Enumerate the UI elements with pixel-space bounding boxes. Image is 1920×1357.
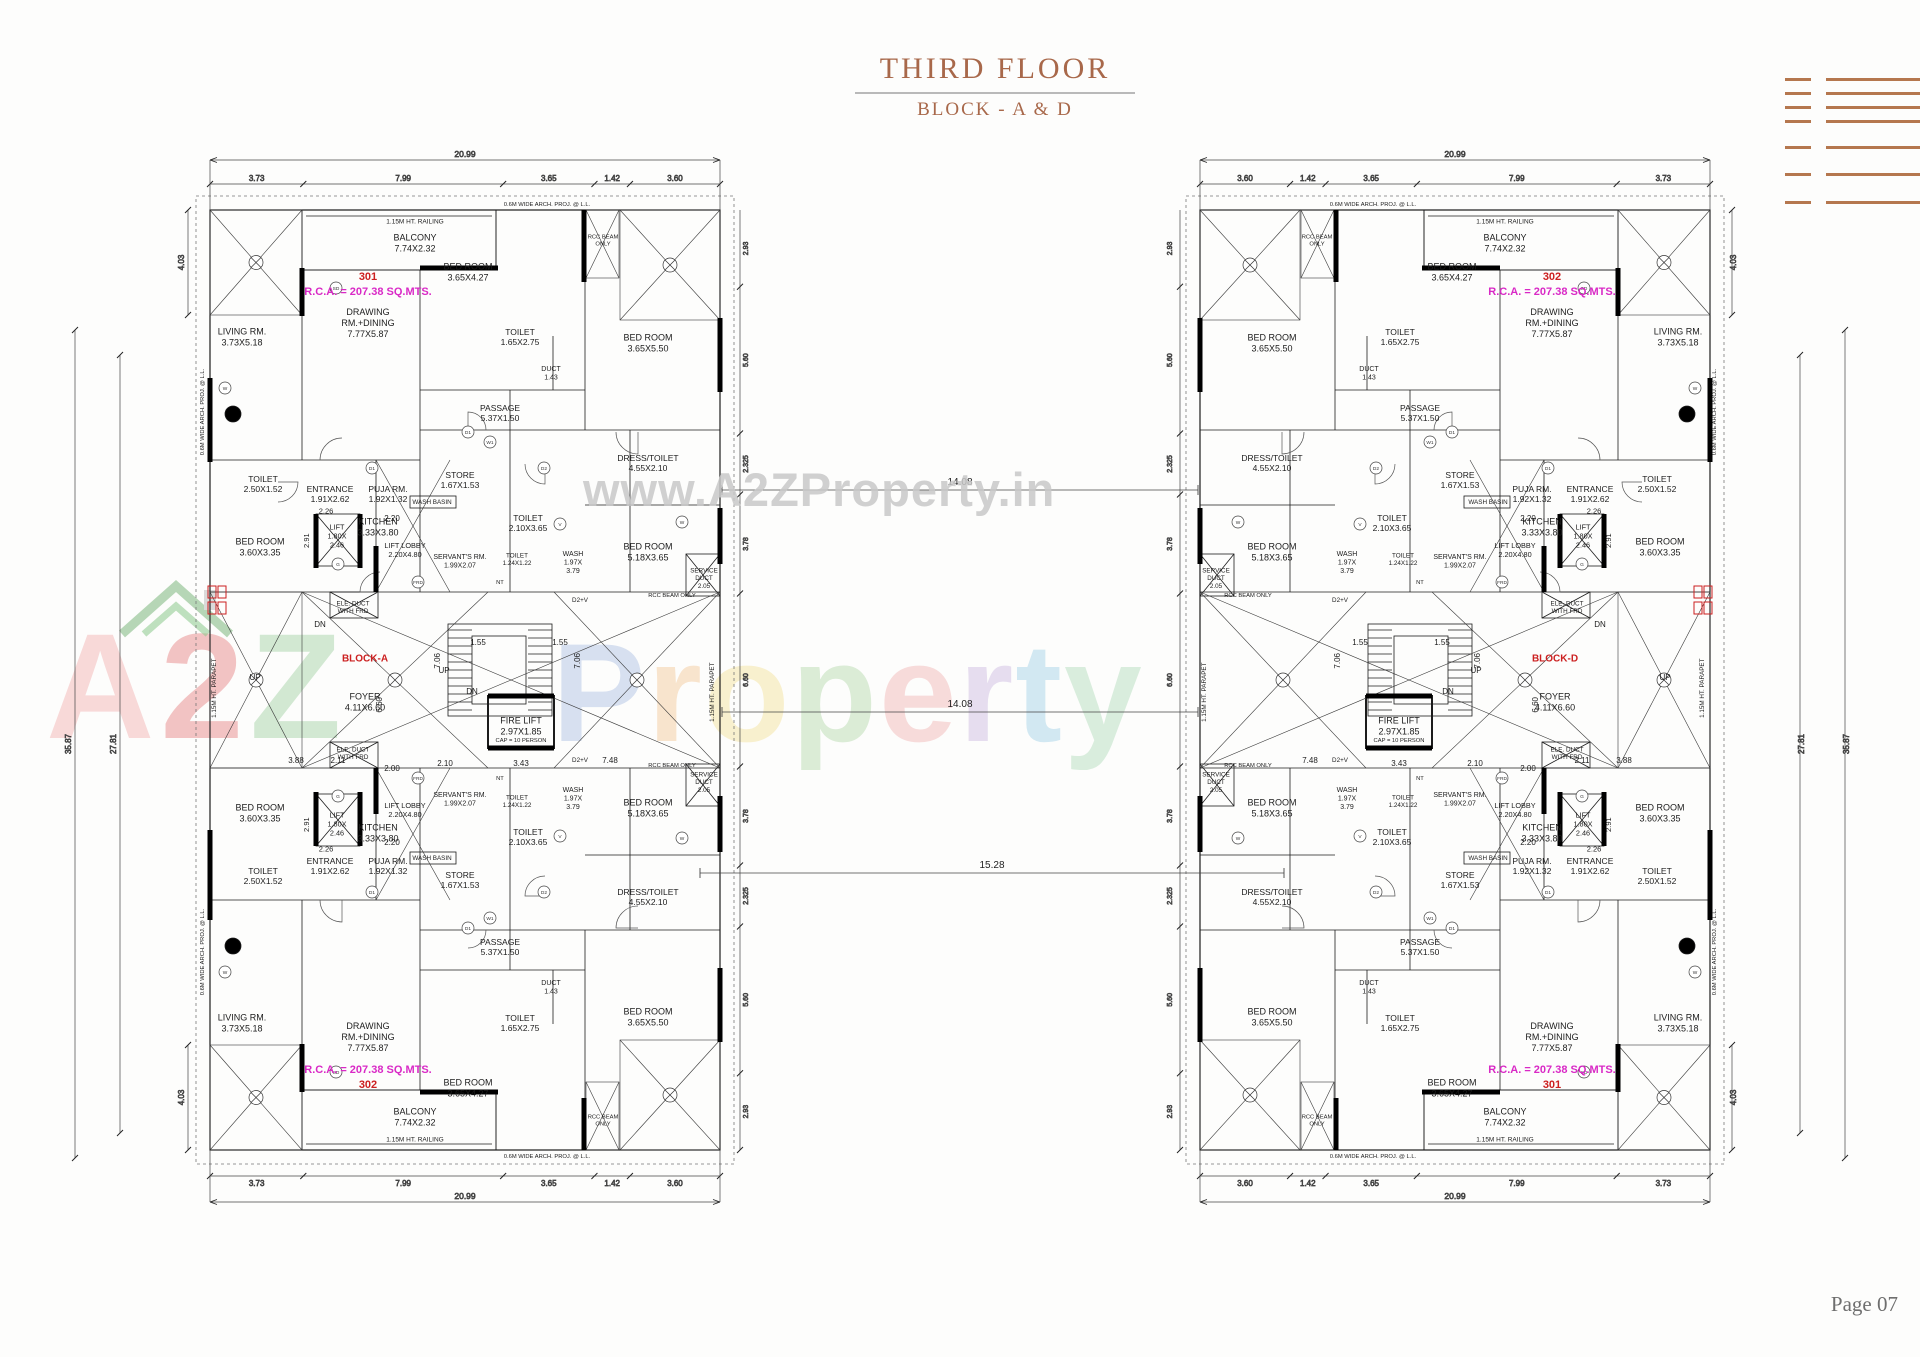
svg-text:1.67X1.53: 1.67X1.53	[441, 480, 480, 490]
svg-text:2.50X1.52: 2.50X1.52	[1638, 876, 1677, 886]
svg-text:D1: D1	[1545, 466, 1551, 472]
svg-text:4.03: 4.03	[177, 1089, 186, 1105]
svg-text:3.60: 3.60	[667, 1179, 683, 1188]
svg-text:7.99: 7.99	[1509, 174, 1525, 183]
svg-text:RM.+DINING: RM.+DINING	[341, 318, 394, 328]
brand-logo	[1785, 78, 1920, 204]
svg-text:301: 301	[359, 271, 377, 283]
svg-text:LIFT LOBBY: LIFT LOBBY	[384, 541, 425, 550]
svg-text:DUCT: DUCT	[541, 980, 561, 987]
svg-text:W: W	[680, 836, 685, 842]
svg-text:7.77X5.87: 7.77X5.87	[347, 1043, 388, 1053]
svg-text:BED ROOM: BED ROOM	[1247, 542, 1296, 552]
svg-text:301: 301	[1543, 1079, 1561, 1091]
svg-text:SERVANT'S RM.: SERVANT'S RM.	[1433, 554, 1486, 561]
svg-text:3.78: 3.78	[1167, 537, 1174, 551]
svg-text:BED ROOM: BED ROOM	[623, 333, 672, 343]
svg-text:STORE: STORE	[1445, 870, 1474, 880]
svg-text:0.6M WIDE ARCH. PROJ. @ L.L.: 0.6M WIDE ARCH. PROJ. @ L.L.	[200, 368, 206, 455]
svg-text:2.325: 2.325	[743, 887, 750, 905]
svg-text:1.99X2.07: 1.99X2.07	[1444, 801, 1476, 808]
svg-text:KITCHEN: KITCHEN	[358, 823, 398, 833]
svg-text:RM.+DINING: RM.+DINING	[1525, 318, 1578, 328]
svg-text:BLOCK-D: BLOCK-D	[1532, 654, 1578, 665]
svg-text:DN: DN	[466, 687, 478, 696]
logo-line-row	[1785, 78, 1920, 81]
svg-text:FRD: FRD	[1497, 580, 1507, 586]
svg-text:PASSAGE: PASSAGE	[480, 937, 520, 947]
svg-text:TOILET: TOILET	[1642, 866, 1672, 876]
svg-text:R.C.A. = 207.38 SQ.MTS.: R.C.A. = 207.38 SQ.MTS.	[304, 286, 431, 298]
svg-text:1.67X1.53: 1.67X1.53	[1441, 480, 1480, 490]
svg-text:7.77X5.87: 7.77X5.87	[1531, 329, 1572, 339]
svg-text:R.C.A. = 207.38 SQ.MTS.: R.C.A. = 207.38 SQ.MTS.	[1488, 1064, 1615, 1076]
svg-text:1.15M HT. PARAPET: 1.15M HT. PARAPET	[1699, 658, 1706, 718]
dimensions: 3.737.993.651.423.6020.993.737.993.651.4…	[64, 149, 750, 1205]
svg-text:FRD: FRD	[413, 580, 423, 586]
svg-text:G: G	[1580, 794, 1584, 800]
svg-text:DRESS/TOILET: DRESS/TOILET	[1241, 453, 1302, 463]
svg-text:TOILET: TOILET	[513, 827, 543, 837]
svg-text:BED ROOM: BED ROOM	[443, 1078, 492, 1088]
svg-text:W: W	[1693, 386, 1698, 392]
logo-line-row	[1785, 106, 1920, 109]
svg-text:6.60: 6.60	[1167, 673, 1174, 687]
svg-text:LIVING RM.: LIVING RM.	[218, 1013, 267, 1023]
svg-text:7.74X2.32: 7.74X2.32	[394, 1118, 435, 1128]
svg-text:2.05: 2.05	[1210, 787, 1223, 794]
svg-text:3.65: 3.65	[541, 1179, 557, 1188]
svg-text:NT: NT	[1416, 776, 1424, 782]
svg-text:2.26: 2.26	[319, 845, 334, 854]
svg-text:BED ROOM: BED ROOM	[1247, 798, 1296, 808]
svg-text:1.80X: 1.80X	[327, 532, 346, 541]
svg-text:PUJA RM.: PUJA RM.	[1512, 856, 1551, 866]
svg-text:TOILET: TOILET	[1385, 1013, 1415, 1023]
svg-text:3.60X3.35: 3.60X3.35	[239, 548, 280, 558]
svg-text:3.60X3.35: 3.60X3.35	[1639, 814, 1680, 824]
svg-text:20.99: 20.99	[454, 1191, 476, 1201]
svg-text:2.11: 2.11	[1575, 756, 1591, 765]
svg-text:1.15M HT. PARAPET: 1.15M HT. PARAPET	[1201, 662, 1208, 722]
svg-text:3.73X5.18: 3.73X5.18	[221, 338, 262, 348]
svg-text:2.325: 2.325	[1167, 887, 1174, 905]
svg-text:D1: D1	[465, 430, 471, 436]
svg-text:W1: W1	[486, 916, 494, 922]
svg-text:D2+V: D2+V	[572, 597, 589, 604]
svg-text:2.20X4.80: 2.20X4.80	[388, 550, 421, 559]
svg-text:2.10X3.65: 2.10X3.65	[509, 523, 548, 533]
svg-text:3.73: 3.73	[1656, 1179, 1672, 1188]
svg-text:RCC BEAM ONLY: RCC BEAM ONLY	[1224, 593, 1272, 599]
svg-text:6.60: 6.60	[743, 673, 750, 687]
svg-text:STORE: STORE	[445, 470, 474, 480]
svg-text:D2+V: D2+V	[1332, 597, 1349, 604]
svg-text:SERVANT'S RM.: SERVANT'S RM.	[1433, 792, 1486, 799]
svg-text:5.60: 5.60	[1167, 353, 1174, 367]
svg-text:3.73: 3.73	[1656, 174, 1672, 183]
fire-hydrant-symbol	[1694, 602, 1712, 614]
svg-text:FRD: FRD	[1497, 776, 1507, 782]
svg-text:2.91: 2.91	[1604, 817, 1613, 832]
svg-text:1.65X2.75: 1.65X2.75	[1381, 337, 1420, 347]
svg-text:2.50X1.52: 2.50X1.52	[244, 876, 283, 886]
svg-text:5.18X3.65: 5.18X3.65	[1251, 809, 1292, 819]
svg-text:4.03: 4.03	[1729, 254, 1738, 270]
svg-text:NT: NT	[496, 776, 504, 782]
svg-text:PUJA RM.: PUJA RM.	[1512, 484, 1551, 494]
svg-text:2.05: 2.05	[698, 787, 711, 794]
svg-text:2.00: 2.00	[384, 764, 400, 773]
svg-text:35.87: 35.87	[1842, 733, 1851, 754]
svg-text:1.24X1.22: 1.24X1.22	[503, 560, 532, 567]
svg-text:WASH: WASH	[1337, 787, 1358, 794]
svg-text:R.C.A. = 207.38 SQ.MTS.: R.C.A. = 207.38 SQ.MTS.	[304, 1064, 431, 1076]
svg-text:W: W	[1236, 836, 1241, 842]
svg-text:1.43: 1.43	[544, 989, 558, 996]
svg-text:5.60: 5.60	[1167, 993, 1174, 1007]
svg-text:1.91X2.62: 1.91X2.62	[311, 494, 350, 504]
logo-line-row	[1785, 92, 1920, 95]
svg-text:D2: D2	[541, 890, 547, 896]
svg-text:ONLY: ONLY	[595, 1122, 610, 1128]
svg-text:7.99: 7.99	[395, 1179, 411, 1188]
svg-text:7.74X2.32: 7.74X2.32	[1484, 1118, 1525, 1128]
svg-text:1.97X: 1.97X	[1338, 795, 1357, 802]
svg-text:DRAWING: DRAWING	[346, 1021, 389, 1031]
svg-text:STORE: STORE	[1445, 470, 1474, 480]
svg-text:DUCT: DUCT	[1359, 366, 1379, 373]
svg-text:2.00: 2.00	[1520, 764, 1536, 773]
svg-text:2.26: 2.26	[1587, 507, 1602, 516]
svg-text:ELE. DUCT: ELE. DUCT	[1551, 600, 1584, 607]
svg-text:W1: W1	[486, 440, 494, 446]
floor-plan-block-a: 3.737.993.651.423.6020.993.737.993.651.4…	[20, 130, 860, 1220]
svg-text:3.33X3.80: 3.33X3.80	[1521, 528, 1562, 538]
svg-text:3.60X3.35: 3.60X3.35	[239, 814, 280, 824]
svg-text:DUCT: DUCT	[1359, 980, 1379, 987]
svg-text:G: G	[336, 794, 340, 800]
svg-text:7.06: 7.06	[433, 652, 442, 668]
svg-text:D2+V: D2+V	[572, 757, 589, 764]
svg-text:2.10X3.65: 2.10X3.65	[1373, 837, 1412, 847]
svg-text:2.93: 2.93	[743, 241, 750, 255]
watermark-letter: t	[1015, 614, 1064, 771]
svg-text:6.60: 6.60	[1531, 696, 1540, 712]
svg-text:3.65X4.27: 3.65X4.27	[1431, 273, 1472, 283]
svg-text:3.65X5.50: 3.65X5.50	[1251, 344, 1292, 354]
svg-text:1.97X: 1.97X	[1338, 559, 1357, 566]
svg-text:TOILET: TOILET	[248, 866, 278, 876]
svg-text:SERVANT'S RM.: SERVANT'S RM.	[433, 554, 486, 561]
svg-text:DUCT: DUCT	[1207, 575, 1225, 582]
svg-text:2.20: 2.20	[384, 838, 400, 847]
svg-text:3.65X4.27: 3.65X4.27	[1431, 1089, 1472, 1099]
svg-text:1.43: 1.43	[1362, 989, 1376, 996]
svg-text:ENTRANCE: ENTRANCE	[1567, 856, 1614, 866]
svg-text:BED ROOM: BED ROOM	[1427, 1078, 1476, 1088]
svg-text:SERVICE: SERVICE	[690, 568, 718, 575]
page-subtitle: BLOCK - A & D	[830, 99, 1160, 121]
floor-plan-block-d: 3.737.993.651.423.6020.993.737.993.651.4…	[1060, 130, 1900, 1220]
watermark-letter: e	[879, 614, 959, 771]
svg-text:ELE. DUCT: ELE. DUCT	[337, 600, 370, 607]
svg-text:1.91X2.62: 1.91X2.62	[311, 866, 350, 876]
svg-text:1.80X: 1.80X	[1573, 820, 1592, 829]
svg-text:7.48: 7.48	[1302, 756, 1318, 765]
svg-text:DN: DN	[314, 620, 326, 629]
svg-text:2.91: 2.91	[302, 533, 311, 548]
svg-text:PASSAGE: PASSAGE	[480, 403, 520, 413]
svg-text:DRESS/TOILET: DRESS/TOILET	[617, 887, 678, 897]
svg-text:2.10: 2.10	[1467, 759, 1483, 768]
svg-text:TOILET: TOILET	[1385, 327, 1415, 337]
svg-text:1.15M HT. PARAPET: 1.15M HT. PARAPET	[709, 662, 716, 722]
svg-text:PASSAGE: PASSAGE	[1400, 403, 1440, 413]
svg-text:ENTRANCE: ENTRANCE	[1567, 484, 1614, 494]
svg-text:3.65X5.50: 3.65X5.50	[627, 1018, 668, 1028]
svg-text:SERVICE: SERVICE	[1202, 568, 1230, 575]
svg-text:2.05: 2.05	[1210, 583, 1223, 590]
svg-text:1.55: 1.55	[1352, 638, 1368, 647]
svg-text:1.65X2.75: 1.65X2.75	[1381, 1023, 1420, 1033]
title-divider	[855, 92, 1135, 94]
svg-text:W: W	[1236, 520, 1241, 526]
title-block: THIRD FLOOR BLOCK - A & D	[830, 52, 1160, 121]
svg-text:1.80X: 1.80X	[327, 820, 346, 829]
svg-text:1.15M HT. RAILING: 1.15M HT. RAILING	[1476, 218, 1533, 225]
svg-text:0.6M WIDE ARCH. PROJ. @ L.L.: 0.6M WIDE ARCH. PROJ. @ L.L.	[504, 202, 591, 208]
svg-text:1.15M HT. RAILING: 1.15M HT. RAILING	[1476, 1136, 1533, 1143]
svg-text:TOILET: TOILET	[506, 794, 528, 801]
svg-text:5.37X1.50: 5.37X1.50	[1401, 947, 1440, 957]
svg-text:2.93: 2.93	[743, 1105, 750, 1119]
svg-text:ONLY: ONLY	[1309, 1122, 1324, 1128]
svg-text:5.37X1.50: 5.37X1.50	[481, 413, 520, 423]
svg-text:BED ROOM: BED ROOM	[443, 262, 492, 272]
svg-text:3.78: 3.78	[1167, 809, 1174, 823]
svg-text:4.55X2.10: 4.55X2.10	[1253, 897, 1292, 907]
svg-text:1.91X2.62: 1.91X2.62	[1571, 494, 1610, 504]
svg-text:5.60: 5.60	[743, 353, 750, 367]
svg-text:2.11: 2.11	[331, 756, 347, 765]
svg-text:BED ROOM: BED ROOM	[1247, 1007, 1296, 1017]
svg-text:WASH BASIN: WASH BASIN	[412, 855, 452, 862]
svg-text:TOILET: TOILET	[505, 1013, 535, 1023]
svg-text:1.92X1.32: 1.92X1.32	[1513, 866, 1552, 876]
svg-text:DRAWING: DRAWING	[1530, 307, 1573, 317]
svg-text:ONLY: ONLY	[1309, 242, 1324, 248]
svg-text:1.67X1.53: 1.67X1.53	[1441, 880, 1480, 890]
svg-text:LIFT: LIFT	[330, 523, 346, 532]
svg-text:27.81: 27.81	[109, 733, 118, 754]
svg-text:0.6M WIDE ARCH. PROJ. @ L.L.: 0.6M WIDE ARCH. PROJ. @ L.L.	[504, 1154, 591, 1160]
svg-text:RCC BEAM: RCC BEAM	[588, 234, 619, 240]
svg-text:RCC BEAM: RCC BEAM	[1302, 1114, 1333, 1120]
svg-text:LIFT: LIFT	[1576, 811, 1592, 820]
svg-text:NT: NT	[1416, 580, 1424, 586]
svg-text:7.77X5.87: 7.77X5.87	[347, 329, 388, 339]
svg-text:3.65: 3.65	[541, 174, 557, 183]
svg-text:3.65: 3.65	[1363, 174, 1379, 183]
logo-line-row	[1785, 201, 1920, 204]
svg-text:D2+V: D2+V	[1332, 757, 1349, 764]
svg-text:3.73X5.18: 3.73X5.18	[1657, 1024, 1698, 1034]
svg-text:BED ROOM: BED ROOM	[1635, 537, 1684, 547]
watermark-url: www.A2ZProperty.in	[583, 462, 1055, 517]
svg-text:TOILET: TOILET	[505, 327, 535, 337]
svg-text:0.6M WIDE ARCH. PROJ. @ L.L.: 0.6M WIDE ARCH. PROJ. @ L.L.	[1330, 1154, 1417, 1160]
svg-text:2.46: 2.46	[330, 828, 344, 837]
svg-text:SERVICE: SERVICE	[690, 772, 718, 779]
svg-text:PASSAGE: PASSAGE	[1400, 937, 1440, 947]
svg-text:WASH BASIN: WASH BASIN	[412, 499, 452, 506]
svg-text:20.99: 20.99	[1444, 149, 1466, 159]
svg-text:W: W	[223, 970, 228, 976]
svg-text:BED ROOM: BED ROOM	[1427, 262, 1476, 272]
svg-text:1.99X2.07: 1.99X2.07	[1444, 563, 1476, 570]
svg-text:5.37X1.50: 5.37X1.50	[481, 947, 520, 957]
svg-text:5.18X3.65: 5.18X3.65	[627, 809, 668, 819]
svg-text:W: W	[680, 520, 685, 526]
svg-text:LIFT: LIFT	[1576, 523, 1592, 532]
svg-text:1.42: 1.42	[604, 1179, 620, 1188]
svg-text:2.26: 2.26	[1587, 845, 1602, 854]
svg-text:RCC BEAM ONLY: RCC BEAM ONLY	[648, 593, 696, 599]
svg-text:BALCONY: BALCONY	[393, 1107, 436, 1117]
svg-text:6.60: 6.60	[375, 696, 384, 712]
svg-text:W: W	[1693, 970, 1698, 976]
svg-text:PUJA RM.: PUJA RM.	[368, 856, 407, 866]
watermark-letter: r	[959, 614, 1015, 771]
svg-text:7.06: 7.06	[1473, 652, 1482, 668]
svg-text:302: 302	[359, 1079, 377, 1091]
svg-text:3.60: 3.60	[1237, 1179, 1253, 1188]
svg-text:D2: D2	[541, 466, 547, 472]
svg-text:15.28: 15.28	[979, 860, 1004, 871]
svg-text:7.06: 7.06	[573, 652, 582, 668]
svg-text:W1: W1	[1426, 916, 1434, 922]
svg-text:2.20X4.80: 2.20X4.80	[388, 810, 421, 819]
logo-line-row	[1785, 146, 1920, 149]
svg-text:LIFT LOBBY: LIFT LOBBY	[1494, 541, 1535, 550]
svg-text:3.79: 3.79	[1340, 568, 1354, 575]
svg-text:7.74X2.32: 7.74X2.32	[1484, 244, 1525, 254]
svg-text:WASH BASIN: WASH BASIN	[1468, 855, 1508, 862]
svg-text:W1: W1	[1426, 440, 1434, 446]
svg-text:3.65X4.27: 3.65X4.27	[447, 273, 488, 283]
svg-text:TOILET: TOILET	[1377, 827, 1407, 837]
svg-text:302: 302	[1543, 271, 1561, 283]
plan-block-left: 3.737.993.651.423.6020.993.737.993.651.4…	[20, 130, 860, 1225]
svg-text:1.24X1.22: 1.24X1.22	[1389, 560, 1418, 567]
svg-text:1.43: 1.43	[544, 375, 558, 382]
svg-text:D1: D1	[1545, 890, 1551, 896]
svg-text:BED ROOM: BED ROOM	[623, 798, 672, 808]
svg-text:WASH: WASH	[1337, 551, 1358, 558]
svg-text:D1: D1	[369, 466, 375, 472]
svg-text:2.325: 2.325	[1167, 455, 1174, 473]
svg-text:DUCT: DUCT	[695, 779, 713, 786]
svg-text:2.20X4.80: 2.20X4.80	[1498, 810, 1531, 819]
svg-text:DRAWING: DRAWING	[1530, 1021, 1573, 1031]
svg-text:3.73: 3.73	[249, 1179, 265, 1188]
svg-text:DUCT: DUCT	[1207, 779, 1225, 786]
svg-text:FIRE LIFT: FIRE LIFT	[500, 716, 542, 726]
svg-text:2.46: 2.46	[1576, 828, 1590, 837]
svg-text:BLOCK-A: BLOCK-A	[342, 654, 388, 665]
svg-text:SERVANT'S RM.: SERVANT'S RM.	[433, 792, 486, 799]
svg-text:2.93: 2.93	[1167, 241, 1174, 255]
svg-text:RCC BEAM: RCC BEAM	[588, 1114, 619, 1120]
svg-text:3.78: 3.78	[743, 537, 750, 551]
svg-text:3.88: 3.88	[288, 756, 304, 765]
svg-text:D1: D1	[465, 926, 471, 932]
svg-text:BED ROOM: BED ROOM	[623, 1007, 672, 1017]
svg-text:TOILET: TOILET	[506, 552, 528, 559]
svg-text:1.65X2.75: 1.65X2.75	[501, 337, 540, 347]
svg-text:UP: UP	[1659, 673, 1670, 682]
svg-text:2.50X1.52: 2.50X1.52	[244, 484, 283, 494]
svg-text:CAP = 10 PERSON: CAP = 10 PERSON	[1374, 738, 1425, 744]
svg-text:NT: NT	[496, 580, 504, 586]
svg-text:1.92X1.32: 1.92X1.32	[369, 866, 408, 876]
svg-text:FOYER: FOYER	[1539, 692, 1571, 702]
svg-text:2.10: 2.10	[437, 759, 453, 768]
svg-text:FRD: FRD	[413, 776, 423, 782]
svg-text:2.93: 2.93	[1167, 1105, 1174, 1119]
svg-text:0.6M WIDE ARCH. PROJ. @ L.L.: 0.6M WIDE ARCH. PROJ. @ L.L.	[1712, 908, 1718, 995]
svg-text:4.55X2.10: 4.55X2.10	[629, 897, 668, 907]
svg-text:TOILET: TOILET	[1392, 552, 1414, 559]
svg-text:0.6M WIDE ARCH. PROJ. @ L.L.: 0.6M WIDE ARCH. PROJ. @ L.L.	[1330, 202, 1417, 208]
svg-text:3.65: 3.65	[1363, 1179, 1379, 1188]
svg-text:BALCONY: BALCONY	[1483, 1107, 1526, 1117]
svg-text:DRAWING: DRAWING	[346, 307, 389, 317]
svg-text:RCC BEAM: RCC BEAM	[1302, 234, 1333, 240]
svg-text:7.74X2.32: 7.74X2.32	[394, 244, 435, 254]
svg-text:2.91: 2.91	[302, 817, 311, 832]
svg-text:BED ROOM: BED ROOM	[623, 542, 672, 552]
svg-text:RCC BEAM ONLY: RCC BEAM ONLY	[648, 763, 696, 769]
dimensions: 3.737.993.651.423.6020.993.737.993.651.4…	[1167, 149, 1851, 1205]
svg-text:STORE: STORE	[445, 870, 474, 880]
svg-text:2.26: 2.26	[319, 507, 334, 516]
svg-text:BED ROOM: BED ROOM	[235, 537, 284, 547]
svg-text:1.92X1.32: 1.92X1.32	[1513, 494, 1552, 504]
svg-text:LIFT LOBBY: LIFT LOBBY	[1494, 801, 1535, 810]
svg-text:RCC BEAM ONLY: RCC BEAM ONLY	[1224, 763, 1272, 769]
svg-text:D2: D2	[1373, 466, 1379, 472]
svg-text:TOILET: TOILET	[1377, 513, 1407, 523]
logo-line-row	[1785, 173, 1920, 176]
svg-text:RM.+DINING: RM.+DINING	[1525, 1032, 1578, 1042]
page-root: THIRD FLOOR BLOCK - A & D A2Z Property w…	[0, 0, 1920, 1357]
svg-text:1.42: 1.42	[1300, 174, 1316, 183]
svg-text:7.77X5.87: 7.77X5.87	[1531, 1043, 1572, 1053]
svg-text:5.18X3.65: 5.18X3.65	[1251, 553, 1292, 563]
svg-text:3.65X4.27: 3.65X4.27	[447, 1089, 488, 1099]
svg-text:7.06: 7.06	[1333, 652, 1342, 668]
svg-text:DN: DN	[1442, 687, 1454, 696]
svg-text:20.99: 20.99	[1444, 1191, 1466, 1201]
svg-text:2.50X1.52: 2.50X1.52	[1638, 484, 1677, 494]
svg-text:1.24X1.22: 1.24X1.22	[1389, 802, 1418, 809]
svg-text:BED ROOM: BED ROOM	[1247, 333, 1296, 343]
svg-text:2.05: 2.05	[698, 583, 711, 590]
svg-text:2.46: 2.46	[1576, 540, 1590, 549]
svg-text:WASH: WASH	[563, 787, 584, 794]
